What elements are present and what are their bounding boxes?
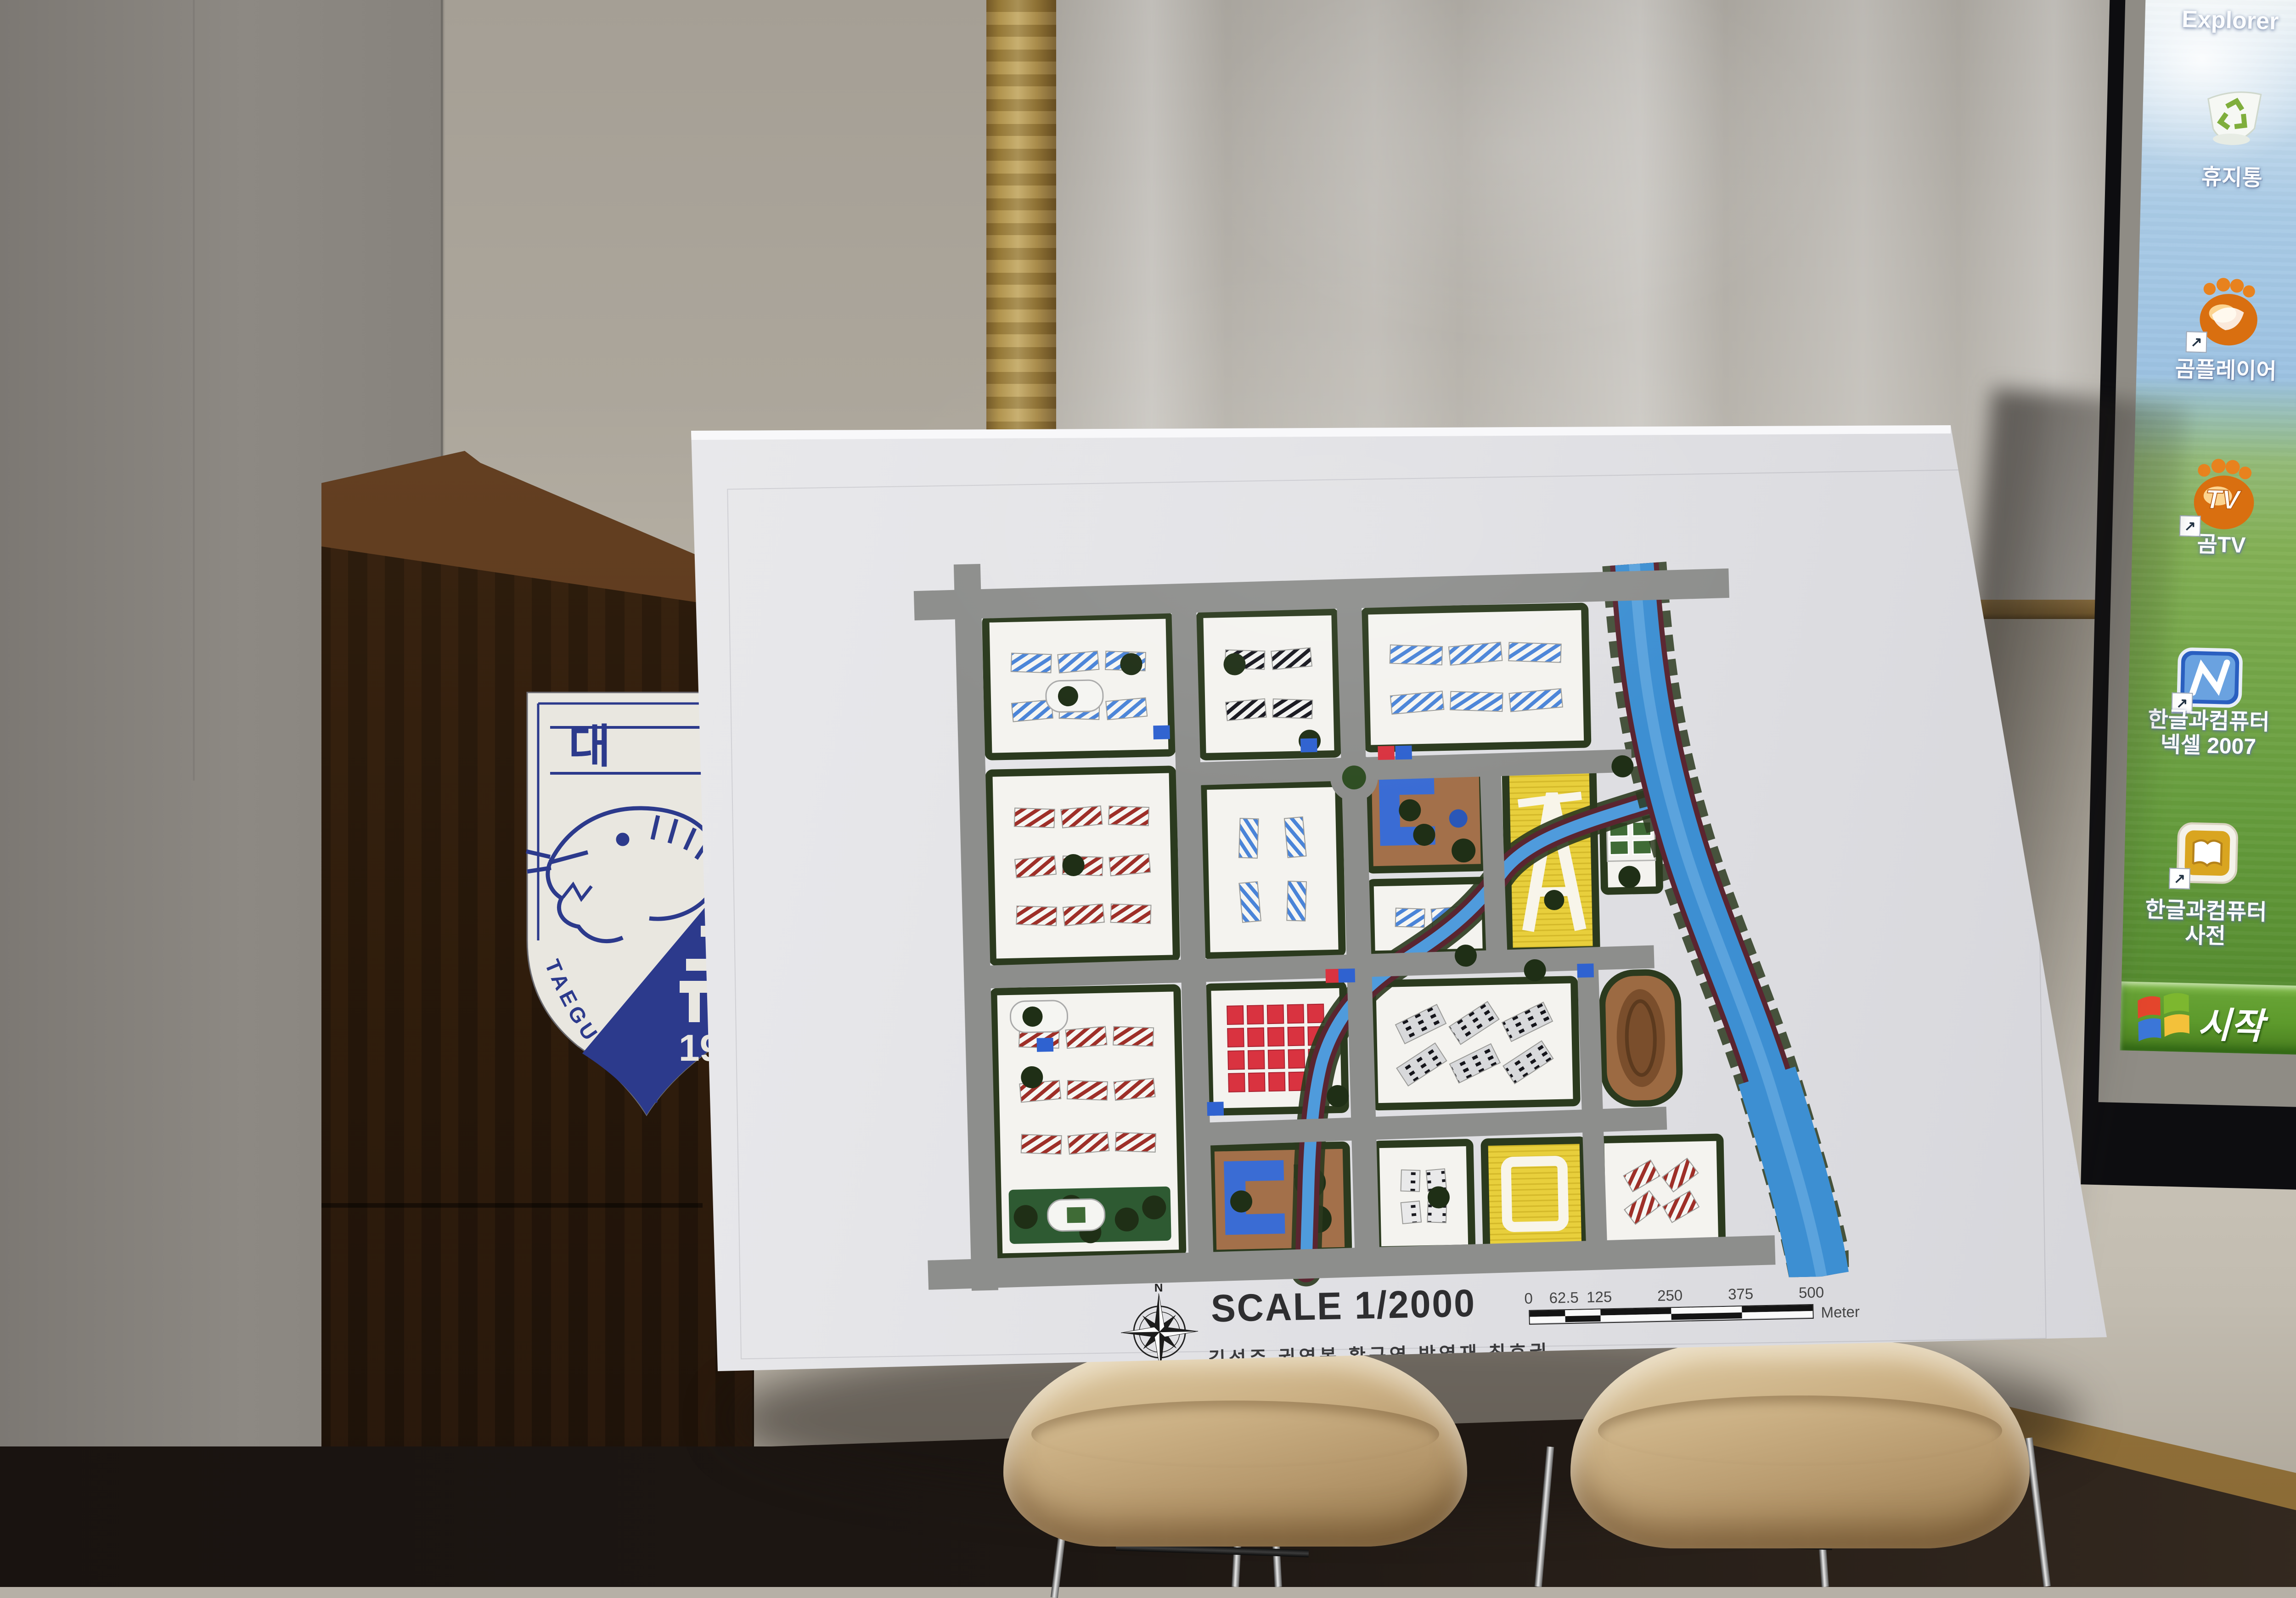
desktop-icon-gom-player[interactable]: ↗ [2189,275,2266,352]
road [1587,959,1597,1254]
cube-building [1207,1102,1224,1116]
chair-seat-crease [1031,1401,1440,1468]
building [1401,1170,1420,1192]
road [1187,760,1632,774]
red-building [1269,1072,1285,1091]
chair-seat-crease [1598,1395,2002,1466]
building [1287,881,1306,921]
building [1284,817,1306,858]
scale-tick-label: 375 [1728,1285,1754,1303]
scale-bar-unit: Meter [1821,1303,1860,1322]
desktop-icon-label-explorer[interactable]: Explorer [2182,6,2279,35]
red-building [1268,1050,1285,1069]
red-building [1227,1006,1244,1024]
desktop-icon-recycle-bin[interactable] [2197,83,2270,156]
building [1113,1027,1154,1047]
desktop-icon-label-dictionary[interactable]: 한글과컴퓨터 사전 [2120,897,2293,951]
tennis-court [1610,841,1629,855]
scale-tick-label: 62.5 [1549,1289,1579,1307]
compass-north-label: N [1154,1283,1163,1294]
svg-text:TV: TV [2205,484,2242,515]
windows-logo-icon [2134,990,2195,1047]
building [1058,651,1099,673]
start-button-label: 시작 [2197,996,2264,1049]
red-building [1288,1027,1305,1046]
cube-building [1395,745,1412,760]
building [1111,904,1151,924]
red-building [1248,1050,1265,1069]
scale-bar-segment [1671,1312,1742,1320]
road [967,564,985,1291]
building [1109,806,1149,826]
building [1016,906,1057,926]
site-plan-map [911,532,1849,1295]
scale-tick-label: 0 [1524,1290,1533,1307]
road [1183,597,1201,1268]
chair-seat [1570,1342,2030,1548]
cube-building [1300,738,1317,753]
building [1239,882,1261,923]
shortcut-arrow-icon: ↗ [2169,868,2190,889]
desktop-icon-gom-tv[interactable]: TV↗ [2182,456,2263,536]
building [1226,699,1266,721]
building [1066,1026,1107,1048]
cube-building [1338,968,1355,983]
desktop-icon-label-gom-player[interactable]: 곰플레이어 [2138,356,2296,385]
red-building [1289,1050,1305,1069]
building [1063,904,1104,926]
building [1271,648,1312,670]
city-block [1376,1142,1472,1250]
red-building [1247,1005,1264,1024]
scale-bar-segment [1601,1314,1671,1321]
building [1061,806,1102,828]
scale-tick-label: 250 [1657,1287,1683,1305]
city-block [1372,979,1577,1107]
building [1396,908,1425,928]
start-button[interactable]: 시작 [2120,981,2296,1055]
building [1015,856,1056,878]
building [1390,645,1443,665]
scale-bar-strip [1529,1304,1814,1325]
building [1067,1080,1108,1100]
building [1011,653,1052,673]
podium-panel-groove [321,1203,703,1208]
capsule-green [1067,1207,1086,1223]
red-building [1228,1073,1245,1092]
city-block [1600,1137,1722,1245]
building [1109,854,1150,876]
chair-seat [1003,1349,1467,1547]
u-building [1224,1160,1284,1182]
road [1490,768,1497,967]
red-building [1227,1028,1244,1047]
wall-seam [193,0,195,781]
city-block [1364,607,1587,749]
scale-bar-segment [1565,1316,1601,1322]
building [1115,1132,1156,1152]
building [1401,1201,1422,1223]
city-block [1484,1140,1585,1248]
desktop-icon-dictionary[interactable]: ↗ [2172,817,2243,889]
cube-building [1577,963,1594,978]
red-building [1228,1051,1244,1069]
scale-bar-segment [1530,1316,1565,1323]
u-building [1225,1213,1285,1235]
scale-tick-label: 125 [1587,1288,1612,1306]
scale-bar-ticks: 062.5125250375500 [1528,1283,1823,1305]
building [1450,692,1503,712]
red-building [1249,1073,1265,1092]
cube-building [1037,1038,1054,1052]
cube-building [1153,725,1170,739]
building [1272,699,1312,719]
red-building [1248,1028,1264,1047]
city-block [1203,783,1342,956]
red-building [1307,1004,1324,1023]
building [1106,698,1147,720]
red-building [1268,1027,1284,1046]
scale-bar-segment [1742,1311,1812,1318]
red-building [1288,1005,1304,1024]
desktop-icon-nexcell[interactable]: ↗ [2174,642,2245,714]
wood-trim [986,0,1056,464]
scale-label: SCALE 1/2000 [1210,1281,1476,1331]
building [1239,818,1259,858]
scale-tick-label: 500 [1799,1283,1824,1301]
shortcut-arrow-icon: ↗ [2186,331,2207,353]
building [1114,1078,1155,1100]
building [1014,808,1055,828]
city-block [1602,972,1680,1104]
building [1508,642,1561,663]
red-building [1267,1005,1284,1024]
tennis-court [1633,840,1652,855]
building [1021,1135,1062,1154]
taskbar[interactable]: 시작 [2120,981,2296,1058]
desktop-icon-label-recycle-bin[interactable]: 휴지통 [2144,163,2296,192]
building [1068,1132,1109,1154]
cube-building [1378,746,1395,760]
